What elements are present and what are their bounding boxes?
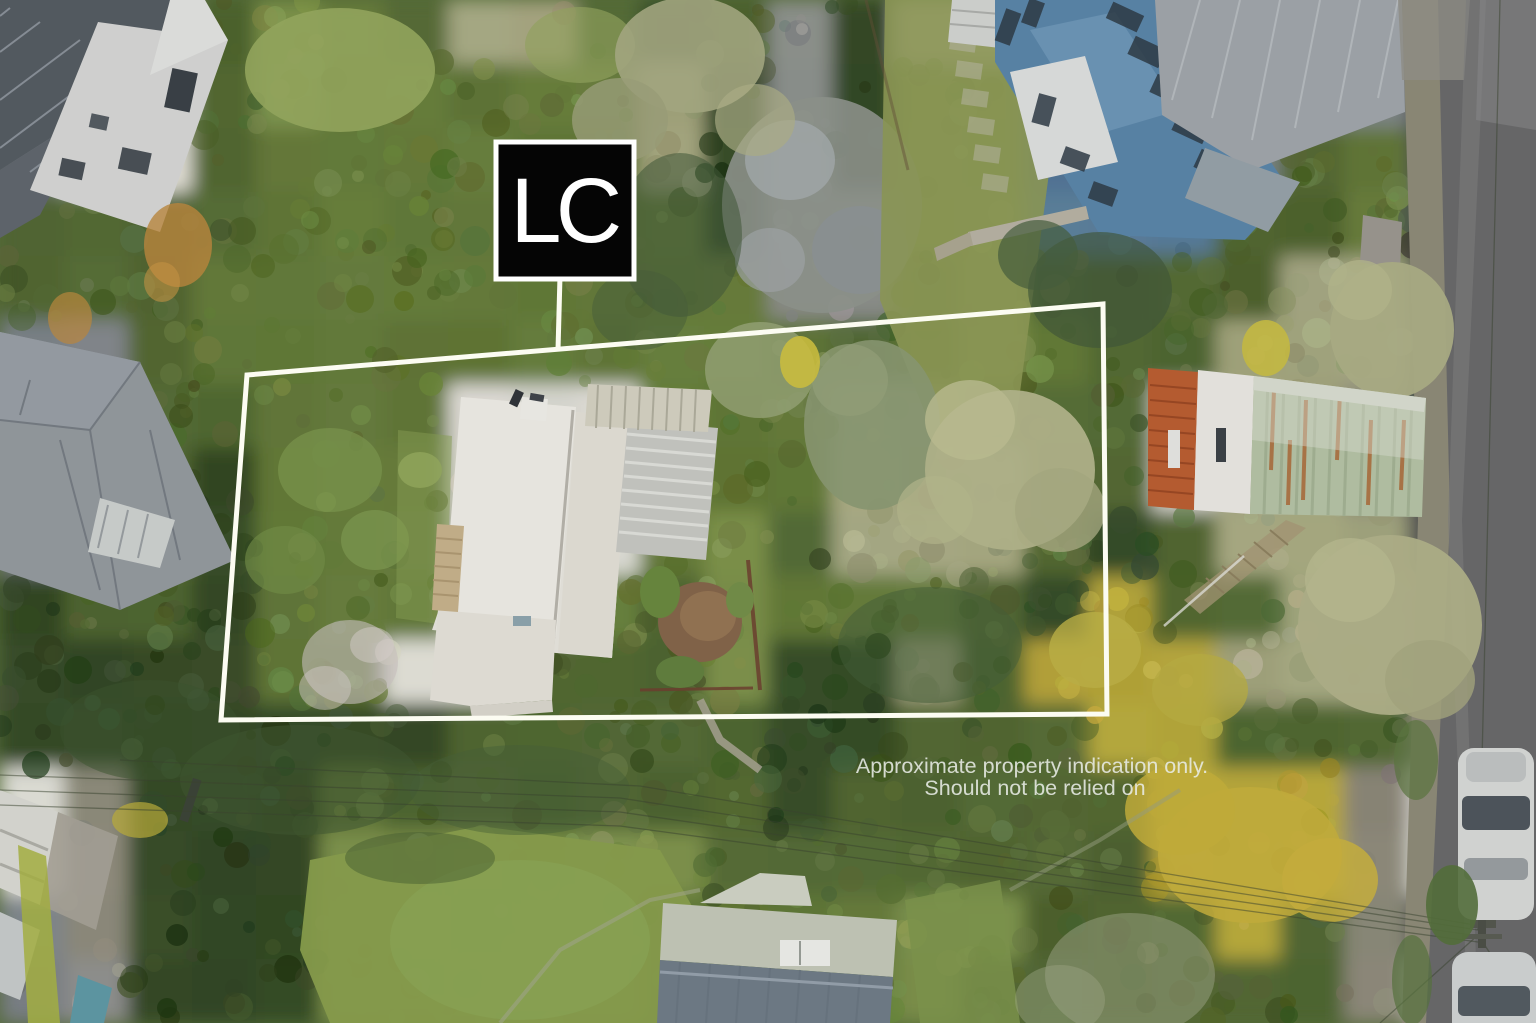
- svg-text:C: C: [556, 160, 622, 262]
- svg-text:Approximate property indicatio: Approximate property indication only.: [856, 754, 1208, 778]
- svg-text:Should not be relied on: Should not be relied on: [924, 776, 1145, 800]
- svg-text:L: L: [510, 160, 561, 262]
